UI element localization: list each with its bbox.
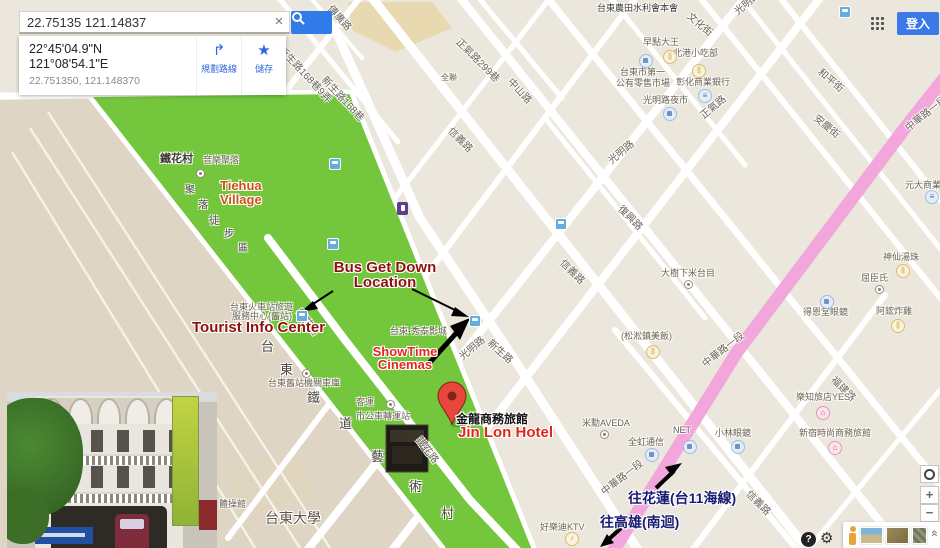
street-label: 安慶街 (811, 110, 844, 141)
poi-label[interactable]: 台東舊站機關車庫 (268, 376, 340, 389)
pegman-icon[interactable] (848, 526, 857, 545)
photo-van (115, 514, 149, 548)
street-label: 新生路 (485, 335, 517, 366)
shop-icon[interactable] (639, 54, 653, 68)
rest-icon[interactable]: || (896, 264, 910, 278)
map-vertical-char: 東 (280, 359, 293, 378)
poi-label[interactable]: 好樂迪KTV (540, 520, 585, 533)
bus-icon[interactable] (555, 218, 567, 230)
coordinates-block: 22°45'04.9"N 121°08'54.1"E 22.751350, 12… (19, 36, 196, 95)
bus-icon[interactable] (327, 238, 339, 250)
bank-icon[interactable]: ≡ (925, 190, 939, 204)
poi-label[interactable]: 米勳AVEDA (582, 416, 630, 429)
map-vertical-char: 鐵 (307, 387, 320, 406)
map-vertical-char: 道 (339, 413, 352, 432)
street-label: 光明路 (455, 332, 488, 363)
street-label: 中華路一段 (901, 91, 940, 134)
collapse-panel-icon[interactable]: « (928, 530, 940, 540)
street-label: 信義路 (445, 123, 477, 155)
annotation-showtime-line2: Cinemas (362, 358, 448, 371)
poi-label[interactable]: 新宿時尚商務旅館 (799, 426, 871, 439)
poi-label[interactable]: 阿鋐炸雞 (876, 304, 912, 317)
longitude-dms: 121°08'54.1"E (29, 57, 196, 72)
bus-icon[interactable] (469, 315, 481, 327)
hotel-icon[interactable]: ⌂ (816, 406, 830, 420)
dot-icon[interactable] (196, 169, 205, 178)
ktv-icon[interactable]: ♪ (565, 532, 579, 546)
annotation-tiehua-line1: Tiehua (220, 179, 262, 193)
zoom-in-button[interactable]: + (920, 486, 939, 504)
map-mode-panel: « (843, 522, 940, 548)
map-vertical-char: 徒 (209, 212, 219, 227)
apps-grid-icon[interactable] (871, 17, 884, 30)
poi-label[interactable]: 台東·秀泰影城 (390, 324, 447, 337)
shop-icon[interactable] (731, 440, 745, 454)
clear-search-icon[interactable]: × (269, 12, 289, 32)
shop-icon[interactable] (645, 448, 659, 462)
street-label: 文化街 (684, 8, 717, 39)
dot-icon[interactable] (875, 285, 884, 294)
hotel-photo-inset (7, 392, 217, 548)
poi-label[interactable]: 市公車轉運站 (356, 409, 410, 422)
poi-label[interactable]: 樂知旅店YES (796, 390, 850, 403)
poi-label[interactable]: 屈臣氏 (861, 271, 888, 284)
street-label: 中華路一段 (698, 327, 747, 370)
dot-icon[interactable] (386, 400, 395, 409)
annotation-tiehua-village: Tiehua Village (220, 179, 262, 207)
annotation-bus-get-down: Bus Get Down Location (327, 260, 443, 290)
hotel-icon[interactable]: ⌂ (828, 441, 842, 455)
bank-icon[interactable]: ≡ (698, 89, 712, 103)
photo-vertical-sign (172, 396, 199, 526)
bus-icon[interactable] (839, 6, 851, 18)
place-card: 22°45'04.9"N 121°08'54.1"E 22.751350, 12… (19, 36, 286, 95)
poi-label[interactable]: 全聯 (441, 72, 457, 83)
map-vertical-char: 聚 (185, 181, 195, 196)
poi-label[interactable]: 北港小吃部 (673, 46, 718, 59)
map-vertical-char: 藝 (371, 446, 384, 465)
map-vertical-char: 步 (224, 225, 234, 240)
shop-icon[interactable] (820, 295, 834, 309)
map-vertical-char: 術 (409, 476, 422, 495)
street-label: 信義路 (743, 486, 775, 518)
gear-icon[interactable]: ⚙ (820, 529, 833, 547)
help-icon[interactable]: ? (801, 532, 816, 547)
map-vertical-char: 區 (238, 239, 248, 254)
my-location-button[interactable] (920, 465, 939, 483)
rest-icon[interactable]: || (891, 319, 905, 333)
search-button[interactable] (291, 11, 332, 34)
imagery-thumbnail[interactable] (912, 527, 927, 544)
street-label: 光明路 (730, 0, 763, 17)
annotation-tiehua-line2: Village (220, 193, 262, 207)
street-label: 和平街 (815, 64, 848, 95)
shop-icon[interactable] (663, 107, 677, 121)
street-label: 復興路 (615, 201, 647, 233)
street-label: 鐵花路 (413, 433, 443, 466)
shop-icon[interactable] (683, 440, 697, 454)
annotation-showtime-cinemas: ShowTime Cinemas (362, 345, 448, 371)
rest-icon[interactable]: || (663, 50, 677, 64)
poi-label[interactable]: 神仙湯珠 (883, 250, 919, 263)
poi-label[interactable]: 小林眼鏡 (715, 426, 751, 439)
dot-icon[interactable] (302, 369, 311, 378)
star-icon: ★ (242, 43, 286, 59)
annotation-jinlon-hotel: Jin Lon Hotel (458, 424, 553, 441)
decimal-coordinates: 22.751350, 121.148370 (29, 75, 196, 87)
directions-label: 規劃路線 (197, 62, 241, 75)
poi-label[interactable]: 彰化商業銀行 (676, 75, 730, 88)
annotation-bus-line1: Bus Get Down (327, 260, 443, 275)
rest-icon[interactable]: || (646, 345, 660, 359)
street-label: 中山路 (505, 74, 536, 106)
street-label: 正氣路299巷 (453, 34, 504, 85)
save-button[interactable]: ★ 儲存 (241, 36, 286, 95)
poi-label[interactable]: 客運 (356, 395, 374, 408)
directions-icon: ↱ (197, 43, 241, 59)
photo-awning (199, 500, 217, 530)
map-vertical-char: 落 (198, 196, 208, 211)
map-canvas[interactable]: 傳廣路新生路168巷9弄新生路168巷正氣路299巷中山路文化街和平街安慶街光明… (0, 0, 940, 548)
rest-icon[interactable]: || (692, 64, 706, 78)
search-box[interactable]: × (19, 11, 290, 34)
street-label: 信義路 (557, 255, 589, 287)
save-label: 儲存 (242, 62, 286, 75)
terrain-thumbnail[interactable] (886, 527, 909, 544)
search-input[interactable] (20, 15, 269, 30)
bus-icon[interactable] (329, 158, 341, 170)
poi_purple-icon[interactable] (397, 202, 408, 215)
poi-label[interactable]: (松淞鎮美飯) (621, 329, 672, 342)
dot-icon[interactable] (684, 280, 693, 289)
annotation-tourist-info-center: Tourist Info Center (192, 319, 325, 336)
satellite-thumbnail[interactable] (860, 527, 883, 544)
target-icon (924, 469, 935, 480)
zoom-out-button[interactable]: − (920, 504, 939, 522)
latitude-dms: 22°45'04.9"N (29, 42, 196, 57)
map-vertical-char: 台 (261, 336, 274, 355)
poi-label[interactable]: 光明路夜市 (643, 93, 688, 106)
poi-label[interactable]: 台東大學 (265, 508, 321, 528)
map-vertical-char: 村 (441, 503, 454, 522)
directions-button[interactable]: ↱ 規劃路線 (196, 36, 241, 95)
poi-label[interactable]: 元大商業銀行 (905, 178, 940, 191)
dot-icon[interactable] (600, 430, 609, 439)
poi-label[interactable]: 鐵花村 (160, 150, 193, 166)
search-icon (291, 11, 305, 25)
annotation-bus-line2: Location (327, 275, 443, 290)
annotation-to-hualien: 往花蓮(台11海線) (628, 488, 736, 508)
poi-label[interactable]: 體操館 (219, 497, 246, 510)
poi-label[interactable]: 音樂聚落 (203, 153, 239, 166)
poi-label[interactable]: 大樹下米台目 (661, 266, 715, 279)
poi-label[interactable]: 公有零售市場 (616, 76, 670, 89)
poi-label[interactable]: 台東農田水利會本會 (597, 1, 678, 14)
poi-label[interactable]: NET (673, 425, 691, 435)
sign-in-button[interactable]: 登入 (897, 12, 939, 35)
annotation-to-kaohsiung: 往高雄(南迴) (600, 512, 679, 532)
poi-label[interactable]: 全虹通信 (628, 435, 664, 448)
street-label: 光明路 (604, 136, 637, 167)
